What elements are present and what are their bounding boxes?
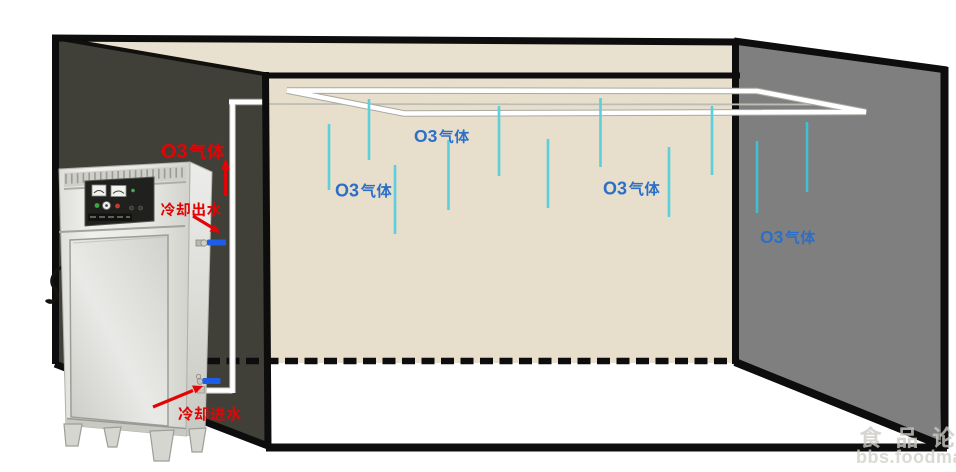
svg-text:O3: O3 xyxy=(603,179,627,199)
svg-text:O3: O3 xyxy=(335,181,359,201)
svg-text:O3: O3 xyxy=(414,126,438,146)
svg-text:bbs.foodma: bbs.foodma xyxy=(856,447,956,467)
svg-text:O3: O3 xyxy=(161,141,188,163)
svg-text:O3: O3 xyxy=(760,227,784,247)
